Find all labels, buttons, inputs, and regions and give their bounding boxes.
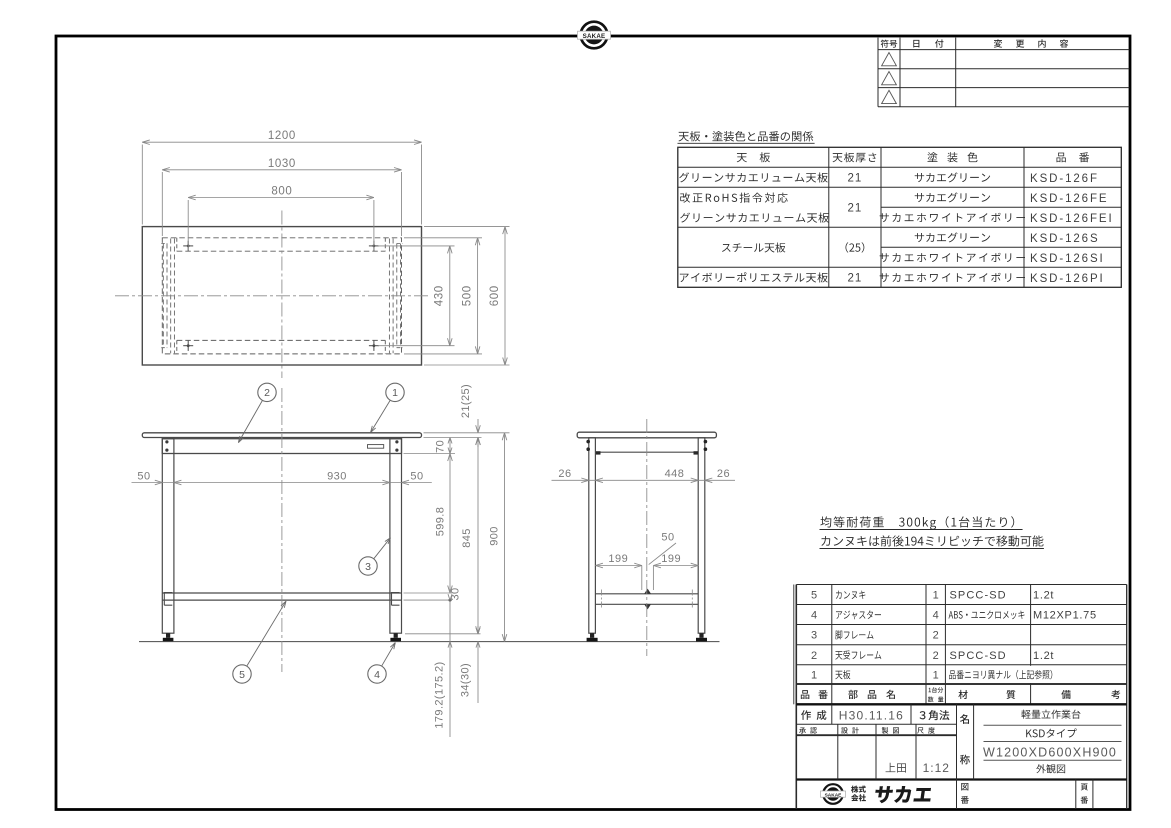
svg-text:1: 1 [811, 669, 817, 681]
svg-text:50: 50 [410, 470, 423, 482]
svg-text:21(25): 21(25) [460, 384, 472, 418]
svg-text:600: 600 [489, 285, 501, 306]
svg-text:SAKAE: SAKAE [583, 33, 606, 40]
svg-text:KSD-126FEI: KSD-126FEI [1030, 213, 1114, 225]
svg-text:1.2t: 1.2t [1033, 590, 1054, 602]
svg-text:KSD-126SI: KSD-126SI [1030, 253, 1105, 265]
svg-text:4: 4 [811, 610, 817, 622]
svg-text:21: 21 [848, 173, 863, 185]
svg-text:SPCC-SD: SPCC-SD [950, 590, 1007, 602]
svg-text:50: 50 [137, 470, 150, 482]
svg-text:5: 5 [811, 590, 817, 602]
svg-text:26: 26 [558, 468, 571, 480]
svg-text:199: 199 [608, 553, 628, 565]
svg-text:4: 4 [374, 669, 380, 681]
svg-text:50: 50 [661, 532, 674, 544]
svg-text:2: 2 [933, 630, 939, 642]
svg-text:30: 30 [450, 587, 462, 600]
svg-text:KSD-126F: KSD-126F [1030, 173, 1099, 185]
svg-text:1200: 1200 [268, 130, 296, 142]
svg-text:M12XP1.75: M12XP1.75 [1033, 610, 1097, 622]
svg-text:1: 1 [392, 387, 398, 399]
svg-text:1030: 1030 [268, 158, 296, 170]
svg-text:599.8: 599.8 [435, 507, 447, 537]
svg-text:2: 2 [264, 387, 270, 399]
svg-text:500: 500 [461, 285, 473, 306]
svg-text:5: 5 [239, 669, 245, 681]
svg-text:W1200XD600XH900: W1200XD600XH900 [983, 745, 1117, 759]
svg-text:KSD-126PI: KSD-126PI [1030, 273, 1105, 285]
svg-text:21: 21 [848, 273, 863, 285]
svg-text:4: 4 [933, 610, 939, 622]
svg-text:SAKAE: SAKAE [825, 793, 843, 799]
svg-text:900: 900 [488, 526, 500, 546]
svg-text:1: 1 [933, 669, 939, 681]
svg-text:21: 21 [848, 203, 863, 215]
svg-text:3: 3 [365, 561, 371, 573]
svg-text:430: 430 [434, 285, 446, 306]
svg-text:KSD-126FE: KSD-126FE [1030, 193, 1108, 205]
svg-text:1:12: 1:12 [923, 761, 950, 775]
svg-text:H30.11.16: H30.11.16 [839, 708, 904, 722]
svg-text:SPCC-SD: SPCC-SD [950, 650, 1007, 662]
svg-text:2: 2 [811, 650, 817, 662]
svg-text:199: 199 [661, 553, 681, 565]
svg-text:1: 1 [933, 590, 939, 602]
svg-text:800: 800 [271, 186, 292, 198]
svg-text:70: 70 [435, 440, 447, 453]
svg-text:3: 3 [811, 630, 817, 642]
svg-text:179.2(175.2): 179.2(175.2) [434, 661, 446, 728]
svg-text:26: 26 [717, 468, 730, 480]
svg-text:2: 2 [933, 650, 939, 662]
svg-text:34(30): 34(30) [459, 663, 471, 697]
svg-text:1.2t: 1.2t [1033, 650, 1054, 662]
svg-text:448: 448 [665, 468, 685, 480]
svg-text:KSD-126S: KSD-126S [1030, 233, 1100, 245]
svg-text:930: 930 [327, 470, 347, 482]
svg-text:845: 845 [461, 528, 473, 548]
